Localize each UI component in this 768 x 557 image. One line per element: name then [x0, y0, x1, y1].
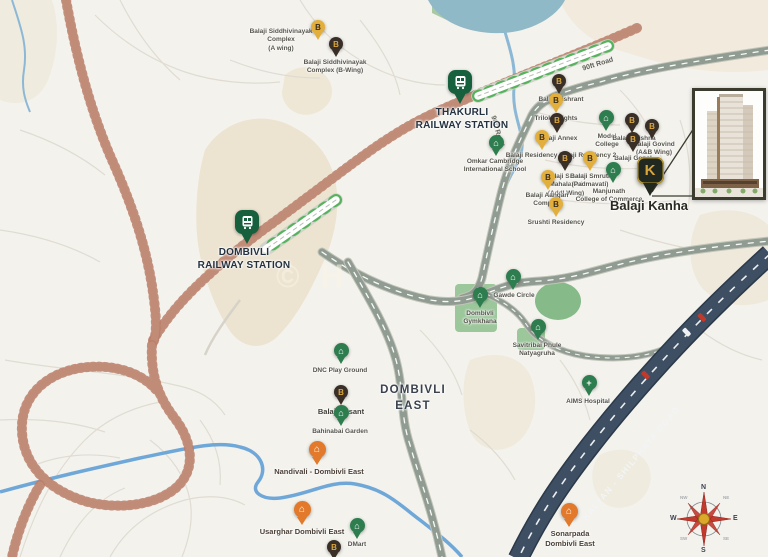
building-rendering — [695, 91, 763, 197]
map-background — [0, 0, 768, 557]
home-icon: ⌂ — [561, 503, 578, 520]
compass-northeast-label: NE — [723, 495, 729, 500]
home-icon: ⌂ — [309, 441, 326, 458]
pin-nandivali[interactable]: ⌂ — [309, 441, 326, 465]
pin-balaji-smruti-padmavati[interactable]: B — [583, 151, 597, 171]
train-icon — [235, 210, 259, 234]
pin-balaji-residency[interactable]: B — [535, 130, 549, 150]
home-icon: ⌂ — [531, 319, 546, 334]
siddhivinayak-a-label: Balaji Siddhivinayak Complex (A wing) — [250, 28, 313, 53]
pin-dombivli-station[interactable] — [235, 210, 259, 244]
b-monogram-icon: B — [626, 132, 640, 146]
map-canvas — [0, 0, 768, 557]
pin-savitribai-natyagruha[interactable]: ⌂ — [531, 319, 546, 340]
pin-model-college[interactable]: ⌂ — [599, 110, 614, 131]
pin-balaji-vasant[interactable]: B — [334, 385, 348, 405]
pin-bahinabai-garden[interactable]: ⌂ — [334, 405, 349, 426]
home-icon: ⌂ — [334, 405, 349, 420]
pin-unlabeled-balaji[interactable]: B — [327, 540, 341, 557]
compass-southeast-label: SE — [723, 536, 729, 541]
pin-trilok-heights[interactable]: B — [549, 93, 563, 113]
home-icon: ⌂ — [489, 135, 504, 150]
home-icon: ⌂ — [599, 110, 614, 125]
thakurli-station-label: THAKURLI RAILWAY STATION — [416, 107, 509, 132]
train-icon — [448, 70, 472, 94]
b-monogram-icon: B — [552, 74, 566, 88]
pin-aims-hospital[interactable]: + — [582, 375, 597, 396]
b-monogram-icon: B — [327, 540, 341, 554]
compass-southwest-label: SW — [680, 536, 687, 541]
b-monogram-icon: B — [645, 119, 659, 133]
pin-balaji-kanha[interactable]: K — [637, 157, 664, 196]
pin-balaji-krishna[interactable]: B — [625, 113, 639, 133]
map: © H 90ft Road 90ft Road KALYAN - SHILPHA… — [0, 0, 768, 557]
srushti-residency-label: Srushti Residency — [528, 219, 585, 227]
pin-siddhivinayak-b[interactable]: B — [329, 37, 343, 57]
k-monogram-icon: K — [637, 157, 664, 184]
home-icon: ⌂ — [334, 343, 349, 358]
b-monogram-icon: B — [334, 385, 348, 399]
compass-north-label: N — [701, 484, 706, 491]
b-monogram-icon: B — [558, 151, 572, 165]
b-monogram-icon: B — [311, 20, 325, 34]
dmart-label: DMart — [348, 541, 366, 549]
pin-omkar-cambridge-school[interactable]: ⌂ — [489, 135, 504, 156]
pin-balaji-gopal[interactable]: B — [626, 132, 640, 152]
sonarpada-label: Sonarpada Dombivli East — [545, 529, 595, 549]
pin-dombivli-gymkhana[interactable]: ⌂ — [473, 287, 488, 308]
bahinabai-garden-label: Bahinabai Garden — [312, 428, 368, 436]
balaji-kanha-label: Balaji Kanha — [610, 198, 688, 215]
aims-hospital-label: AIMS Hospital — [566, 398, 610, 406]
pin-usarghar[interactable]: ⌂ — [294, 501, 311, 525]
b-monogram-icon: B — [625, 113, 639, 127]
project-inset — [692, 88, 766, 200]
home-icon: ⌂ — [473, 287, 488, 302]
pin-dnc-playground[interactable]: ⌂ — [334, 343, 349, 364]
compass-south-label: S — [701, 547, 706, 554]
siddhivinayak-b-label: Balaji Siddhivinayak Complex (B-Wing) — [304, 59, 367, 76]
b-monogram-icon: B — [549, 197, 563, 211]
compass-west-label: W — [670, 515, 677, 522]
pin-gawde-circle[interactable]: ⌂ — [506, 269, 521, 290]
pin-balaji-vishrant[interactable]: B — [552, 74, 566, 94]
gawde-circle-label: Gawde Circle — [493, 292, 534, 300]
pin-balaji-aangan[interactable]: B — [541, 170, 555, 190]
home-icon: ⌂ — [350, 518, 365, 533]
pin-balaji-govind[interactable]: B — [645, 119, 659, 139]
b-monogram-icon: B — [550, 113, 564, 127]
home-icon: ⌂ — [506, 269, 521, 284]
home-icon: ⌂ — [606, 162, 621, 177]
dnc-playground-label: DNC Play Ground — [313, 367, 368, 375]
b-monogram-icon: B — [549, 93, 563, 107]
compass-northwest-label: NW — [680, 495, 688, 500]
pin-srushti-residency[interactable]: B — [549, 197, 563, 217]
pin-siddhivinayak-a[interactable]: B — [311, 20, 325, 40]
savitribai-natyagruha-label: Savitribai Phule Natyagruha — [513, 342, 562, 359]
compass-east-label: E — [733, 515, 738, 522]
pin-balaji-smruti-mahalaxmi[interactable]: B — [558, 151, 572, 171]
dombivli-east-area-label: DOMBIVLI EAST — [380, 383, 446, 414]
b-monogram-icon: B — [541, 170, 555, 184]
omkar-cambridge-school-label: Omkar Cambridge International School — [464, 158, 526, 175]
cross-icon: + — [582, 375, 597, 390]
home-icon: ⌂ — [294, 501, 311, 518]
pin-dmart[interactable]: ⌂ — [350, 518, 365, 539]
usarghar-label: Usarghar Dombivli East — [260, 527, 345, 537]
pin-thakurli-station[interactable] — [448, 70, 472, 104]
compass-rose: N S W E NE NW SE SW — [668, 484, 740, 556]
pin-manjunath-college[interactable]: ⌂ — [606, 162, 621, 183]
b-monogram-icon: B — [535, 130, 549, 144]
b-monogram-icon: B — [583, 151, 597, 165]
dombivli-gymkhana-label: Dombivli Gymkhana — [463, 310, 496, 327]
pin-balaji-annex[interactable]: B — [550, 113, 564, 133]
pin-sonarpada[interactable]: ⌂ — [561, 503, 578, 527]
dombivli-station-label: DOMBIVLI RAILWAY STATION — [198, 247, 291, 272]
b-monogram-icon: B — [329, 37, 343, 51]
nandivali-label: Nandivali - Dombivli East — [274, 467, 364, 477]
